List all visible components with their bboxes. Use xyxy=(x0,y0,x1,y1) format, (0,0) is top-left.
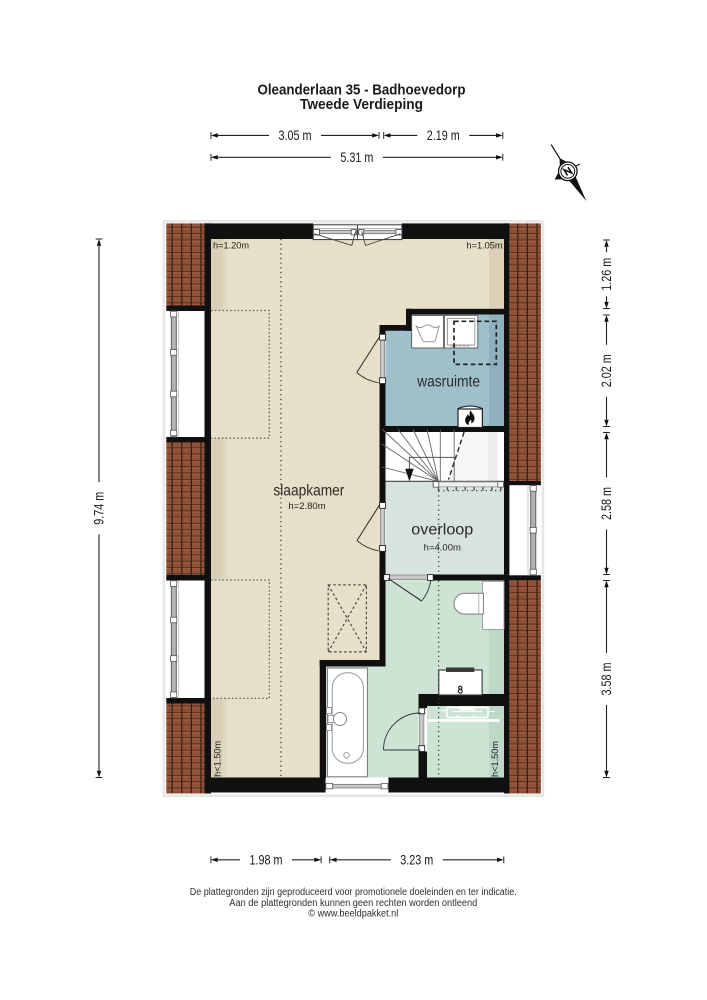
svg-text:wasruimte: wasruimte xyxy=(416,374,480,391)
svg-text:3.58 m: 3.58 m xyxy=(598,663,614,696)
svg-text:1.98 m: 1.98 m xyxy=(250,851,283,867)
svg-text:5.31 m: 5.31 m xyxy=(340,149,373,165)
svg-text:overloop: overloop xyxy=(411,522,473,539)
svg-text:slaapkamer: slaapkamer xyxy=(273,483,344,500)
svg-text:3.05 m: 3.05 m xyxy=(279,127,312,143)
svg-text:© www.beeldpakket.nl: © www.beeldpakket.nl xyxy=(308,909,398,920)
svg-text:h=1.20m: h=1.20m xyxy=(213,241,249,251)
svg-text:2.19 m: 2.19 m xyxy=(427,127,460,143)
svg-text:h=1.05m: h=1.05m xyxy=(466,241,502,251)
svg-text:h=4.00m: h=4.00m xyxy=(424,543,461,554)
svg-text:h<1.50m: h<1.50m xyxy=(213,740,223,776)
svg-text:h=2.80m: h=2.80m xyxy=(288,501,325,512)
svg-text:2.02 m: 2.02 m xyxy=(598,354,614,387)
svg-text:Aan de plattegronden kunnen ge: Aan de plattegronden kunnen geen rechten… xyxy=(229,898,477,909)
svg-text:1.26 m: 1.26 m xyxy=(598,258,614,291)
svg-text:9.74 m: 9.74 m xyxy=(91,492,107,525)
svg-text:2.58 m: 2.58 m xyxy=(598,487,614,520)
svg-text:De plattegronden zijn geproduc: De plattegronden zijn geproduceerd voor … xyxy=(190,887,517,898)
svg-text:Tweede Verdieping: Tweede Verdieping xyxy=(300,96,423,113)
svg-text:3.23 m: 3.23 m xyxy=(400,851,433,867)
svg-text:h<1.50m: h<1.50m xyxy=(490,741,500,777)
